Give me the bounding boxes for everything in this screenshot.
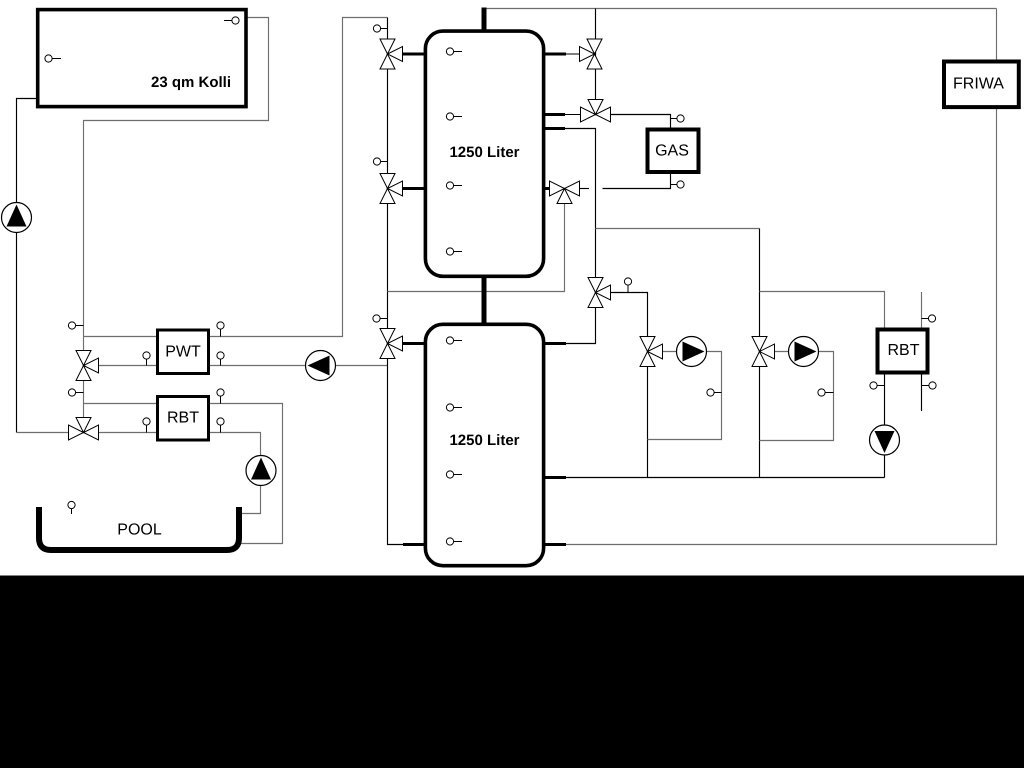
svg-text:RBT: RBT: [888, 342, 920, 359]
svg-text:1250 Liter: 1250 Liter: [449, 144, 519, 161]
svg-text:PWT: PWT: [165, 344, 201, 361]
svg-text:POOL: POOL: [117, 522, 162, 539]
svg-text:FRIWA: FRIWA: [953, 76, 1004, 93]
svg-text:1250 Liter: 1250 Liter: [449, 432, 519, 449]
svg-text:23 qm Kolli: 23 qm Kolli: [151, 74, 231, 91]
svg-text:RBT: RBT: [167, 410, 199, 427]
svg-text:GAS: GAS: [655, 143, 689, 160]
